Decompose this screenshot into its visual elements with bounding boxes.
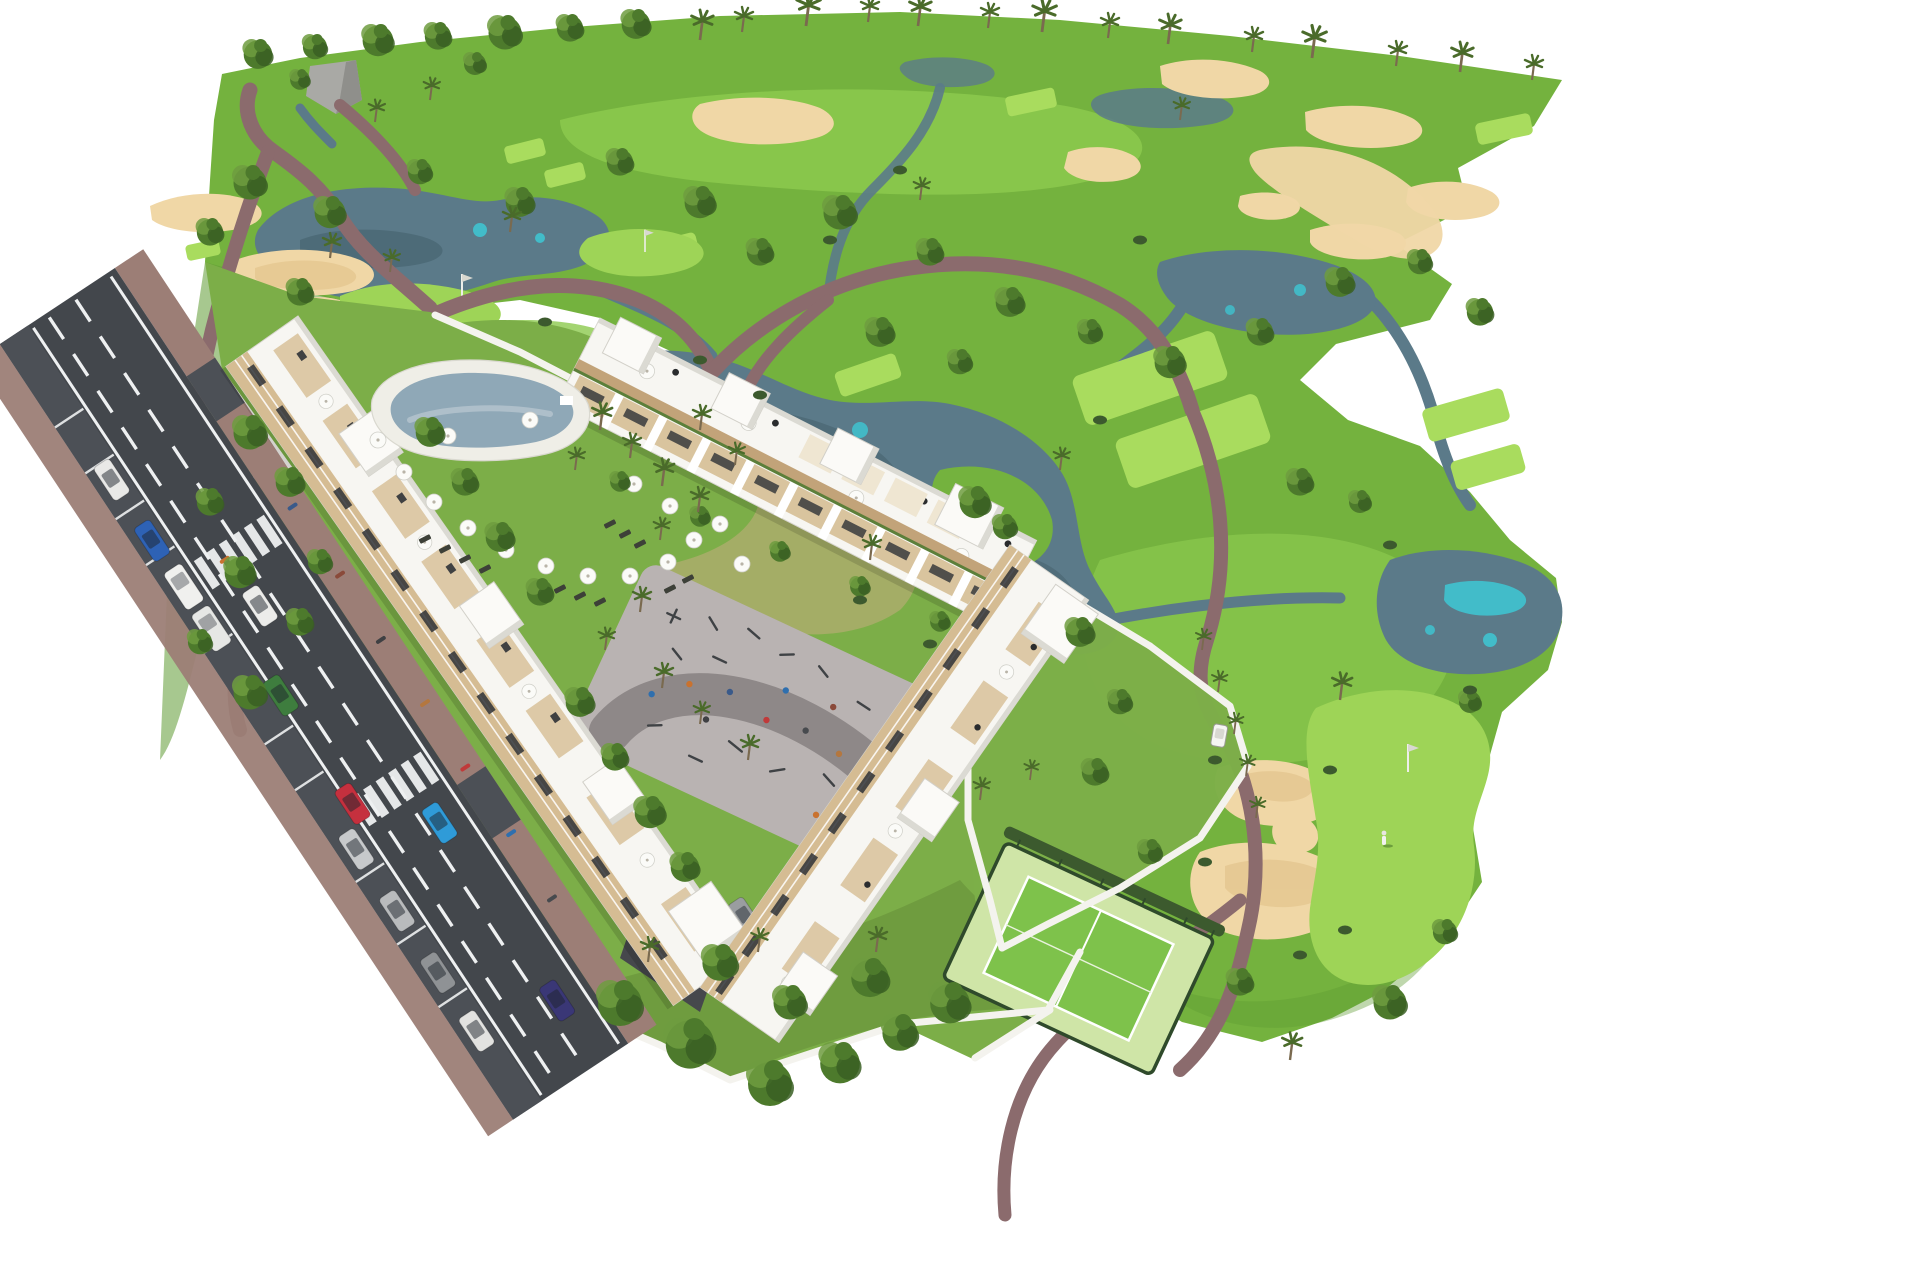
scene-svg xyxy=(0,0,1920,1280)
pool-steps xyxy=(560,396,573,405)
aerial-render-canvas xyxy=(0,0,1920,1280)
